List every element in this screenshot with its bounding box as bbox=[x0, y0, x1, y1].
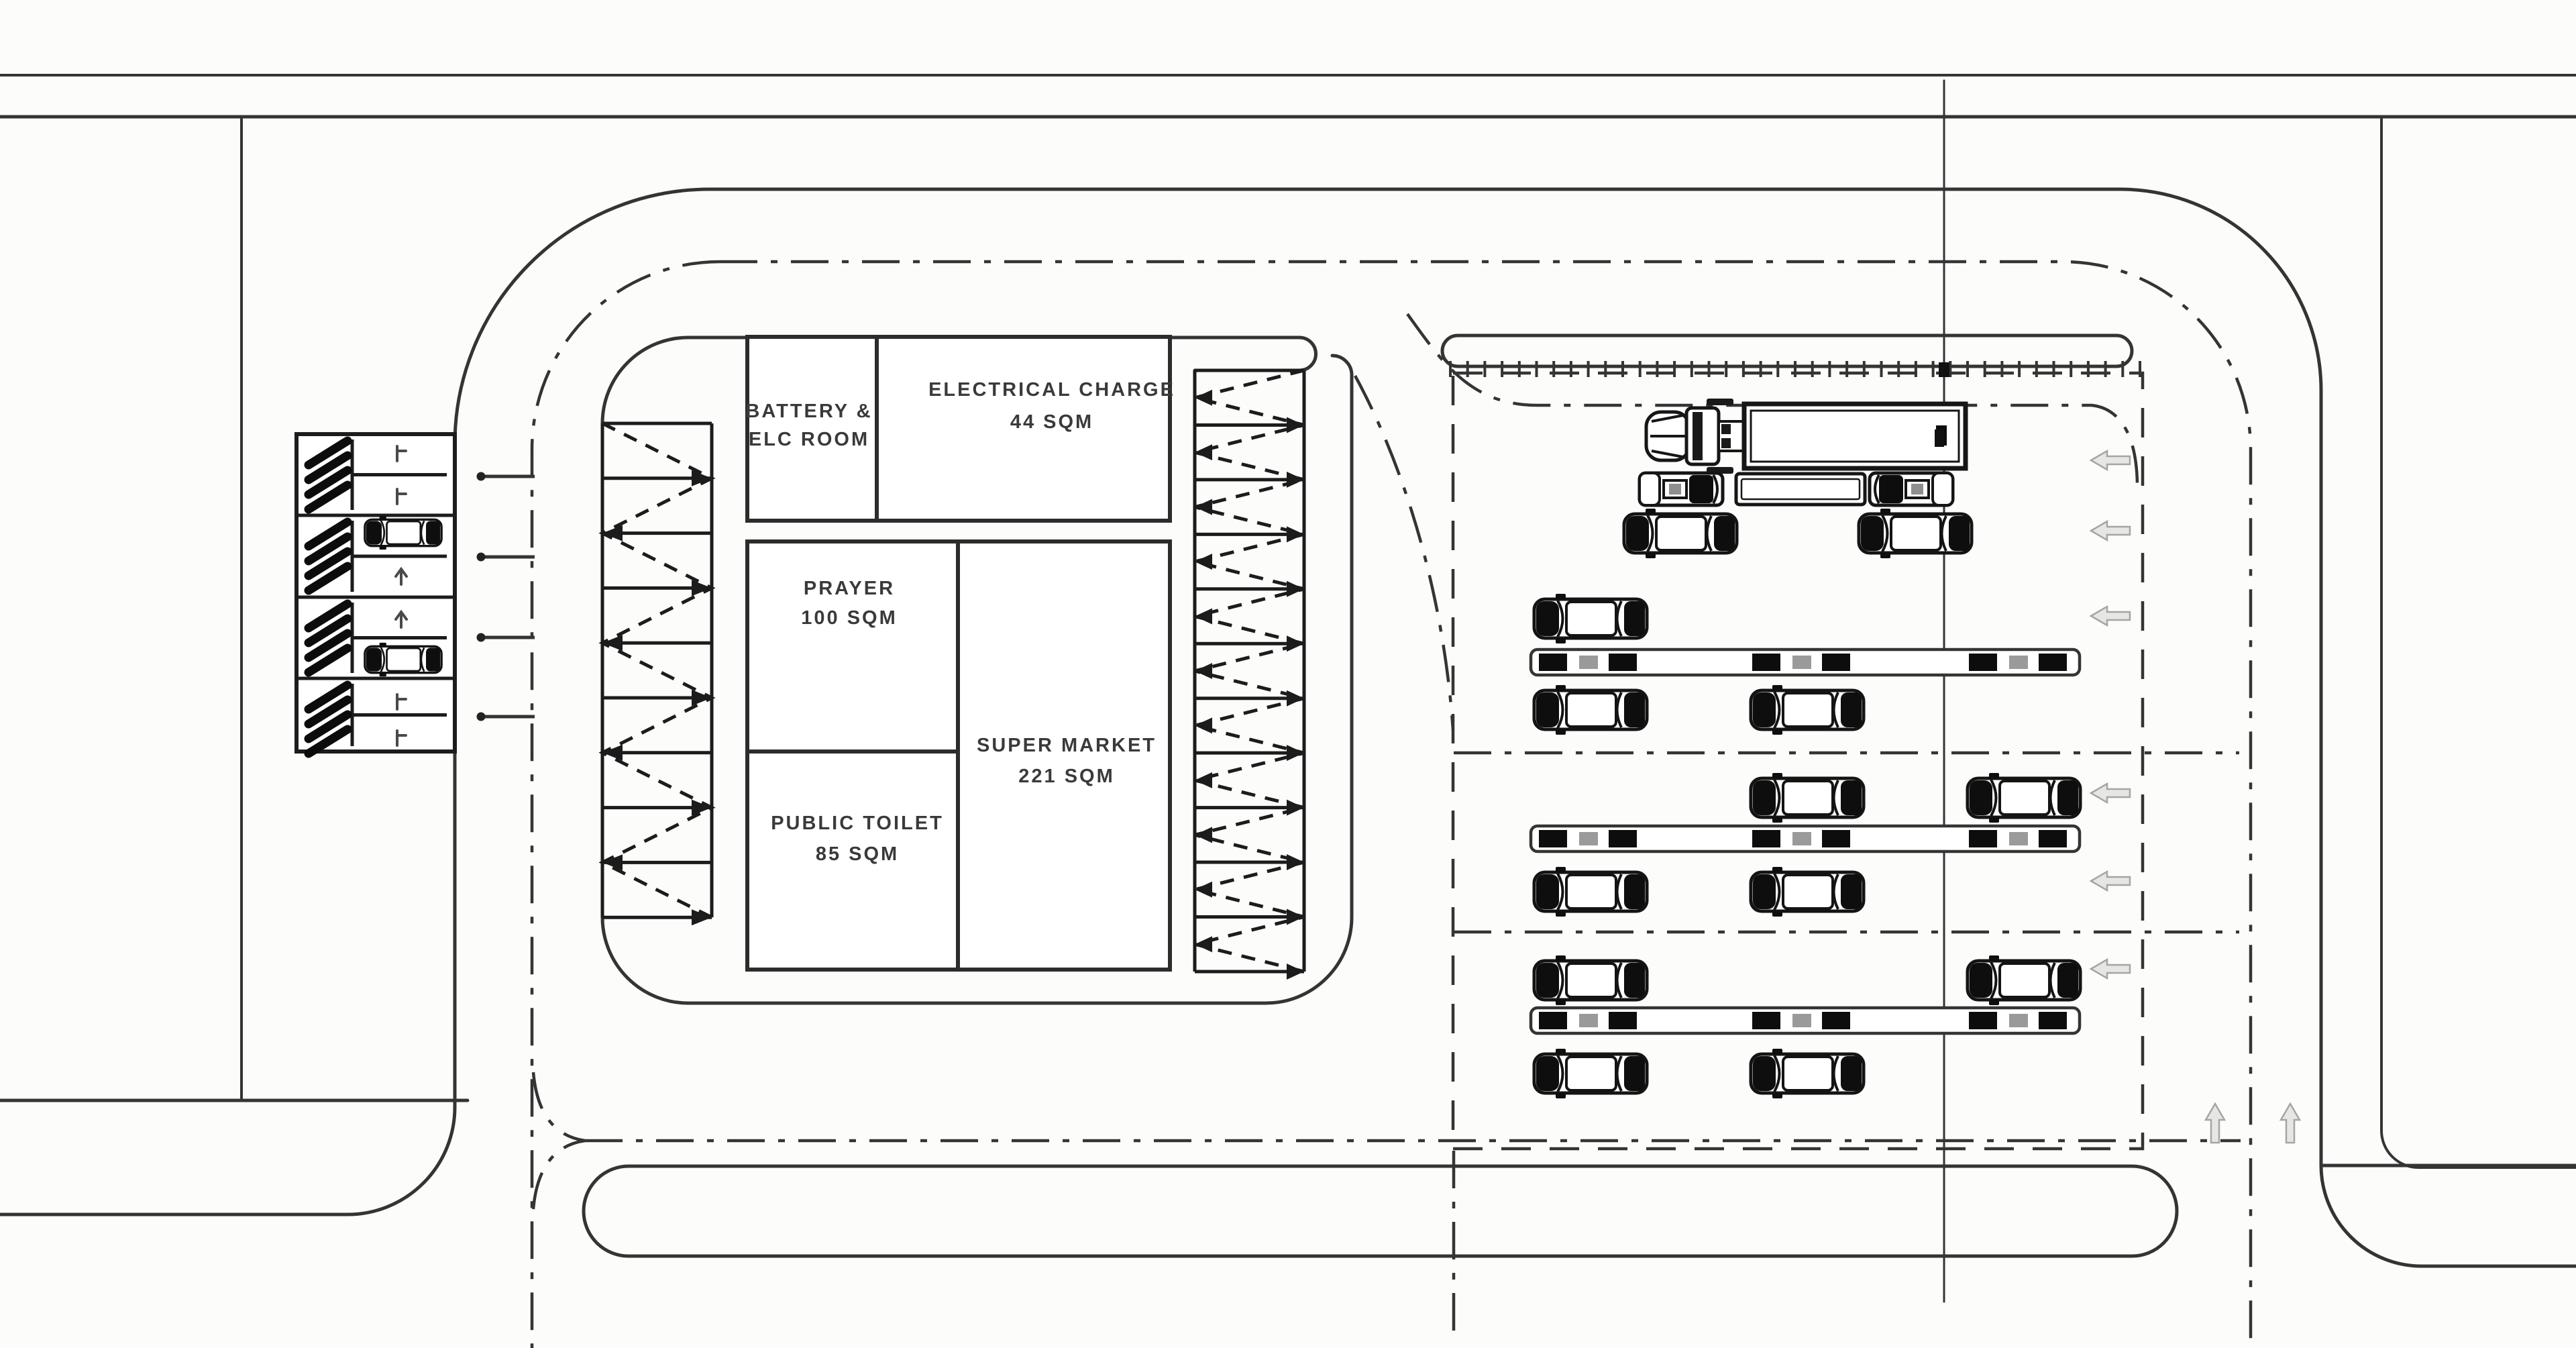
building-label: 44 SQM bbox=[1010, 411, 1093, 433]
zigzag-arrowhead-icon bbox=[1287, 854, 1304, 870]
entry-lane-dot bbox=[477, 713, 486, 721]
charger-unit-icon bbox=[1969, 1012, 1997, 1029]
south-median-island bbox=[584, 1166, 2177, 1256]
zigzag-arrowhead-icon bbox=[1287, 909, 1304, 925]
zigzag-arrowhead-icon bbox=[692, 580, 712, 596]
ring-centerline-merge-upper bbox=[533, 1072, 585, 1141]
building-label: PRAYER bbox=[804, 578, 895, 599]
flow-arrow-left-icon bbox=[2091, 607, 2130, 625]
building-outline bbox=[747, 541, 958, 751]
ring-centerline-merge-lower bbox=[533, 1141, 585, 1209]
building-label: 85 SQM bbox=[816, 843, 899, 865]
charger-pad-icon bbox=[1579, 656, 1598, 669]
site-plan-drawing: BATTERY &ELC ROOMELECTRICAL CHARGE44 SQM… bbox=[0, 0, 2576, 1348]
charger-unit-icon bbox=[1752, 1012, 1780, 1029]
charger-unit-icon bbox=[2039, 1012, 2067, 1029]
ev-charging-island-1 bbox=[1531, 650, 2080, 675]
truck-charging-island bbox=[1442, 335, 2132, 366]
zigzag-arrowhead-icon bbox=[1287, 800, 1304, 816]
entry-lane-dot bbox=[477, 472, 486, 481]
charger-unit-icon bbox=[1752, 830, 1780, 847]
east-property-line bbox=[2381, 117, 2576, 1168]
charger-unit-icon bbox=[1969, 830, 1997, 847]
charger-unit-icon bbox=[1822, 830, 1850, 847]
zigzag-arrowhead-icon bbox=[1195, 390, 1212, 406]
zigzag-arrowhead-icon bbox=[1287, 745, 1304, 761]
ev-charging-island-2 bbox=[1531, 826, 2080, 851]
yard-tractor-icon bbox=[1870, 473, 1953, 505]
flow-arrow-left-icon bbox=[2091, 521, 2130, 540]
charger-unit-icon bbox=[1609, 1012, 1637, 1029]
zigzag-arrowhead-icon bbox=[602, 525, 623, 541]
zigzag-arrowhead-icon bbox=[1287, 526, 1304, 542]
zigzag-arrowhead-icon bbox=[1195, 663, 1212, 679]
building-super-market: SUPER MARKET221 SQM bbox=[958, 541, 1170, 970]
charger-pad-icon bbox=[2009, 656, 2028, 669]
car-icon bbox=[1751, 685, 1864, 735]
flow-arrow-left-icon bbox=[2091, 784, 2130, 802]
charger-pad-icon bbox=[1579, 832, 1598, 845]
flow-arrow-left-icon bbox=[2091, 872, 2130, 890]
flow-arrow-left-icon bbox=[2091, 451, 2130, 470]
zigzag-arrowhead-icon bbox=[602, 745, 623, 761]
charger-unit-icon bbox=[1539, 654, 1567, 671]
building-prayer: PRAYER100 SQM bbox=[747, 541, 958, 751]
empty-trailer-icon bbox=[1736, 474, 1865, 505]
car-icon bbox=[1534, 685, 1647, 735]
entry-lane-dot bbox=[477, 553, 486, 562]
charger-unit-icon bbox=[1539, 1012, 1567, 1029]
charger-pad-icon bbox=[2009, 832, 2028, 845]
zigzag-arrowhead-icon bbox=[1287, 964, 1304, 980]
zigzag-arrowhead-icon bbox=[1195, 499, 1212, 515]
section-marker bbox=[1939, 362, 1949, 377]
entry-lane-dot bbox=[477, 633, 486, 642]
fuel-station-canopy bbox=[297, 434, 455, 754]
zigzag-arrowhead-icon bbox=[1195, 554, 1212, 570]
parking-entry-lane bbox=[1355, 376, 1453, 730]
flow-arrow-up-icon bbox=[2281, 1104, 2300, 1143]
flow-arrow-up-icon bbox=[2206, 1104, 2224, 1143]
zigzag-arrowhead-icon bbox=[1195, 609, 1212, 625]
building-battery-elc-room: BATTERY &ELC ROOM bbox=[745, 337, 877, 521]
charger-unit-icon bbox=[1609, 830, 1637, 847]
yard-tractor-icon bbox=[1640, 473, 1723, 505]
building-label: 221 SQM bbox=[1018, 766, 1115, 787]
zigzag-arrowhead-icon bbox=[1287, 417, 1304, 433]
building-label: SUPER MARKET bbox=[977, 735, 1157, 756]
zigzag-arrowhead-icon bbox=[1287, 581, 1304, 597]
car-icon bbox=[1968, 773, 2080, 823]
zigzag-arrowhead-icon bbox=[1195, 444, 1212, 460]
east-parking-row bbox=[1195, 370, 1304, 980]
charger-unit-icon bbox=[1822, 1012, 1850, 1029]
charger-pad-icon bbox=[1792, 832, 1811, 845]
charger-unit-icon bbox=[2039, 830, 2067, 847]
building-electrical-charge: ELECTRICAL CHARGE44 SQM bbox=[877, 337, 1175, 521]
building-label: ELECTRICAL CHARGE bbox=[928, 379, 1175, 401]
zigzag-arrowhead-icon bbox=[1195, 827, 1212, 843]
zigzag-arrowhead-icon bbox=[1195, 717, 1212, 733]
car-icon bbox=[1751, 1049, 1864, 1098]
car-icon bbox=[1968, 955, 2080, 1005]
building-label: PUBLIC TOILET bbox=[771, 813, 944, 834]
zigzag-arrowhead-icon bbox=[602, 635, 623, 651]
car-icon bbox=[365, 516, 441, 550]
zigzag-arrowhead-icon bbox=[692, 690, 712, 706]
ev-charging-island-3 bbox=[1531, 1008, 2080, 1033]
charger-unit-icon bbox=[2039, 654, 2067, 671]
building-label: ELC ROOM bbox=[749, 429, 869, 450]
zigzag-arrowhead-icon bbox=[1287, 690, 1304, 707]
charger-unit-icon bbox=[1822, 654, 1850, 671]
car-icon bbox=[1751, 867, 1864, 917]
car-icon bbox=[365, 643, 441, 676]
car-icon bbox=[1534, 1049, 1647, 1098]
zigzag-guide-line bbox=[602, 423, 712, 917]
semi-truck-icon bbox=[1646, 399, 1966, 474]
charger-unit-icon bbox=[1752, 654, 1780, 671]
building-public-toilet: PUBLIC TOILET85 SQM bbox=[747, 751, 958, 970]
car-icon bbox=[1751, 773, 1864, 823]
building-label: 100 SQM bbox=[801, 607, 898, 629]
flow-arrow-left-icon bbox=[2091, 960, 2130, 978]
zigzag-arrowhead-icon bbox=[1287, 472, 1304, 488]
car-icon bbox=[1859, 509, 1972, 558]
zigzag-arrowhead-icon bbox=[1287, 635, 1304, 652]
car-icon bbox=[1534, 955, 1647, 1005]
charger-pad-icon bbox=[1792, 1014, 1811, 1027]
zigzag-arrowhead-icon bbox=[1195, 772, 1212, 788]
charger-pad-icon bbox=[1579, 1014, 1598, 1027]
charger-unit-icon bbox=[1609, 654, 1637, 671]
charger-unit-icon bbox=[1539, 830, 1567, 847]
car-icon bbox=[1534, 867, 1647, 917]
charger-unit-icon bbox=[1969, 654, 1997, 671]
section-marker bbox=[1935, 429, 1944, 447]
zigzag-arrowhead-icon bbox=[1195, 936, 1212, 952]
charger-pad-icon bbox=[1792, 656, 1811, 669]
charger-pad-icon bbox=[2009, 1014, 2028, 1027]
zigzag-arrowhead-icon bbox=[692, 800, 712, 816]
car-icon bbox=[1624, 509, 1737, 558]
zigzag-arrowhead-icon bbox=[1195, 882, 1212, 898]
building-label: BATTERY & bbox=[745, 401, 872, 422]
car-icon bbox=[1534, 594, 1647, 643]
west-parking-row bbox=[602, 423, 712, 925]
